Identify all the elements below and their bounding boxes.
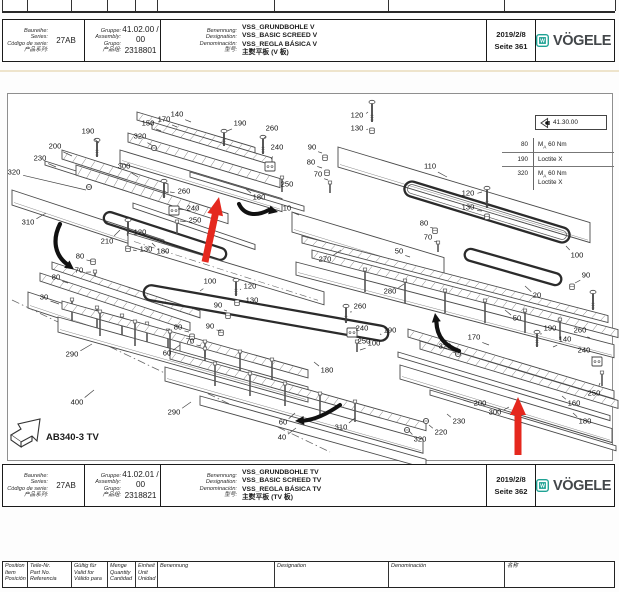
header-table-top: Baureihe: Series: Código de serie: 产品系列:… <box>2 19 615 62</box>
callout-label-320: 320 <box>414 435 427 444</box>
callout-label-50: 50 <box>513 314 521 323</box>
callout-label-90: 90 <box>214 301 222 310</box>
name-es: VSS_REGLA BÁSICA TV <box>242 486 321 494</box>
legend-rows: 80MA 60 Nm190Loctite X320MA 60 NmLoctite… <box>502 138 614 190</box>
callout-label-80: 80 <box>76 252 84 261</box>
catalog-page: { "headers": [ { "series_labels": ["Baur… <box>0 0 619 592</box>
callout-label-130: 130 <box>351 124 364 133</box>
scan-artifact-line <box>0 70 619 72</box>
callout-label-70: 70 <box>186 337 194 346</box>
callout-label-240: 240 <box>356 324 369 333</box>
callout-label-70: 70 <box>314 170 322 179</box>
model-direction-arrow-icon <box>7 414 49 450</box>
footer-col-Benennung: Benennung <box>158 562 275 587</box>
callout-label-290: 290 <box>66 350 79 359</box>
page-number: Seite 362 <box>495 486 528 497</box>
callout-label-100: 100 <box>571 251 584 260</box>
table-divider <box>27 0 28 11</box>
callout-label-70: 70 <box>75 266 83 275</box>
footer-col-Einheit: EinheitUnitUnidad <box>136 562 158 587</box>
group-cell: Gruppe: Assembly: Grupo: 产品组: 41.02.01 /… <box>84 465 160 506</box>
brand-cell: W VÖGELE <box>535 20 611 61</box>
callout-label-230: 230 <box>34 154 47 163</box>
legend-ref-box: 41.30.00 <box>535 115 607 130</box>
model-label: AB340-3 TV <box>46 432 99 443</box>
callout-label-160: 160 <box>568 399 581 408</box>
table-divider <box>157 0 158 11</box>
footer-col-Designation: Designation <box>275 562 389 587</box>
see-assembly-pointer-icon <box>539 117 550 129</box>
callout-label-90: 90 <box>308 143 316 152</box>
designation-cell: Benennung: Designation: Denominación: 型号… <box>160 20 486 61</box>
legend-pos: 190 <box>502 152 533 166</box>
callout-label-60: 60 <box>279 418 287 427</box>
legend-ref-number: 41.30.00 <box>553 119 578 126</box>
name-de: VSS_GRUNDBOHLE V <box>242 24 317 32</box>
callout-label-180: 180 <box>321 366 334 375</box>
callout-label-220: 220 <box>435 428 448 437</box>
footer-col-Position: PositionItemPosición <box>3 562 28 587</box>
table-divider <box>388 0 389 11</box>
name-es: VSS_REGLA BÁSICA V <box>242 41 317 49</box>
table-divider <box>2 0 3 11</box>
table-divider <box>135 0 136 11</box>
callout-label-120: 120 <box>462 189 475 198</box>
name-en: VSS_BASIC SCREED V <box>242 32 317 40</box>
callout-label-150: 150 <box>142 119 155 128</box>
callout-label-240: 240 <box>271 143 284 152</box>
callout-label-120: 120 <box>134 228 147 237</box>
callout-label-300: 300 <box>489 408 502 417</box>
date-page-cell: 2019/2/8 Seite 361 <box>486 20 535 61</box>
callout-label-50: 50 <box>395 247 403 256</box>
callout-label-30: 30 <box>40 293 48 302</box>
series-cell: Baureihe: Series: Código de serie: 产品系列:… <box>3 20 84 61</box>
legend-spec: Loctite X <box>533 152 614 166</box>
callout-label-240: 240 <box>187 204 200 213</box>
callout-label-60: 60 <box>163 349 171 358</box>
svg-text:W: W <box>540 483 545 489</box>
callout-label-280: 280 <box>384 287 397 296</box>
footer-col-Menge: MengeQuantityCantidad <box>108 562 136 587</box>
callout-label-90: 90 <box>582 271 590 280</box>
callout-label-230: 230 <box>453 417 466 426</box>
callout-label-100: 100 <box>204 277 217 286</box>
callout-label-10: 10 <box>283 204 291 213</box>
callout-label-250: 250 <box>358 337 371 346</box>
callout-label-310: 310 <box>335 423 348 432</box>
callout-label-70: 70 <box>424 233 432 242</box>
svg-text:W: W <box>540 38 545 44</box>
brand-cell: W VÖGELE <box>535 465 611 506</box>
footer-col-Teile-Nr.: Teile-Nr.Part No.Referencia <box>28 562 72 587</box>
callout-label-240: 240 <box>578 346 591 355</box>
group-cell: Gruppe: Assembly: Grupo: 产品组: 41.02.00 /… <box>84 20 160 61</box>
footer-table: PositionItemPosiciónTeile-Nr.Part No.Ref… <box>2 561 615 588</box>
page-number: Seite 361 <box>495 41 528 52</box>
table-divider <box>274 0 275 11</box>
header-table-bottom: Baureihe: Series: Código de serie: 产品系列:… <box>2 464 615 507</box>
group-number: 2318821 <box>121 491 160 502</box>
previous-page-table-strip <box>2 0 615 13</box>
callout-label-260: 260 <box>178 187 191 196</box>
callout-label-290: 290 <box>168 408 181 417</box>
legend-pos: 80 <box>502 138 533 152</box>
callout-label-40: 40 <box>278 433 286 442</box>
group-number: 2318801 <box>121 46 160 57</box>
footer-col-Denominación: Denominación <box>389 562 505 587</box>
callout-label-80: 80 <box>420 219 428 228</box>
callout-label-200: 200 <box>474 399 487 408</box>
callout-label-140: 140 <box>559 335 572 344</box>
callout-label-170: 170 <box>158 115 171 124</box>
callout-label-80: 80 <box>307 158 315 167</box>
footer-col-名称: 名称 <box>505 562 616 587</box>
series-value: 27AB <box>48 481 84 490</box>
callout-label-260: 260 <box>354 302 367 311</box>
callout-label-260: 260 <box>574 326 587 335</box>
callout-label-130: 130 <box>246 296 259 305</box>
table-divider <box>71 0 72 11</box>
assembly-number: 41.02.01 / 00 <box>121 470 160 491</box>
brand-name: VÖGELE <box>553 478 611 494</box>
callout-label-120: 120 <box>244 282 257 291</box>
callout-label-130: 130 <box>462 203 475 212</box>
callout-label-140: 140 <box>171 110 184 119</box>
callout-label-210: 210 <box>101 237 114 246</box>
callout-label-320: 320 <box>8 168 21 177</box>
name-zh: 主熨平板 (V 板) <box>242 49 317 57</box>
voegele-logo-icon: W <box>536 476 549 495</box>
callout-label-110: 110 <box>424 162 436 171</box>
callout-label-190: 190 <box>234 119 247 128</box>
name-de: VSS_GRUNDBOHLE TV <box>242 469 321 477</box>
callout-label-80: 80 <box>174 323 182 332</box>
callout-label-90: 90 <box>206 322 214 331</box>
series-cell: Baureihe: Series: Código de serie: 产品系列:… <box>3 465 84 506</box>
legend: 41.30.00 80MA 60 Nm190Loctite X320MA 60 … <box>502 115 614 190</box>
table-divider <box>615 0 616 11</box>
callout-label-310: 310 <box>22 218 35 227</box>
name-en: VSS_BASIC SCREED TV <box>242 477 321 485</box>
legend-pos: 320 <box>502 166 533 189</box>
callout-label-250: 250 <box>281 180 294 189</box>
table-divider <box>504 0 505 11</box>
voegele-logo-icon: W <box>536 31 549 50</box>
callout-label-320: 320 <box>439 342 452 351</box>
brand-name: VÖGELE <box>553 33 611 49</box>
callout-label-180: 180 <box>253 193 266 202</box>
callout-label-170: 170 <box>468 333 481 342</box>
assembly-number: 41.02.00 / 00 <box>121 25 160 46</box>
footer-col-Gültig für: Gültig fürValid forVálido para <box>72 562 108 587</box>
callout-label-190: 190 <box>544 324 557 333</box>
date-page-cell: 2019/2/8 Seite 362 <box>486 465 535 506</box>
callout-label-20: 20 <box>533 291 541 300</box>
callout-label-270: 270 <box>319 255 332 264</box>
legend-spec: MA 60 NmLoctite X <box>533 166 614 189</box>
callout-label-190: 190 <box>384 326 397 335</box>
callout-label-250: 250 <box>189 216 202 225</box>
series-value: 27AB <box>48 36 84 45</box>
name-zh: 主熨平板 (TV 板) <box>242 494 321 502</box>
callout-label-260: 260 <box>266 124 279 133</box>
callout-label-300: 300 <box>118 162 131 171</box>
callout-label-190: 190 <box>82 127 95 136</box>
callout-label-130: 130 <box>140 245 153 254</box>
callout-label-80: 80 <box>52 273 60 282</box>
legend-spec: MA 60 Nm <box>533 138 614 152</box>
date: 2019/2/8 <box>496 474 526 485</box>
callout-label-180: 180 <box>579 417 592 426</box>
callout-label-250: 250 <box>588 389 601 398</box>
callout-label-180: 180 <box>157 247 170 256</box>
callout-label-120: 120 <box>351 111 364 120</box>
callout-label-400: 400 <box>71 398 84 407</box>
table-divider <box>107 0 108 11</box>
designation-cell: Benennung: Designation: Denominación: 型号… <box>160 465 486 506</box>
date: 2019/2/8 <box>496 29 526 40</box>
callout-label-320: 320 <box>134 132 147 141</box>
callout-label-200: 200 <box>49 142 62 151</box>
